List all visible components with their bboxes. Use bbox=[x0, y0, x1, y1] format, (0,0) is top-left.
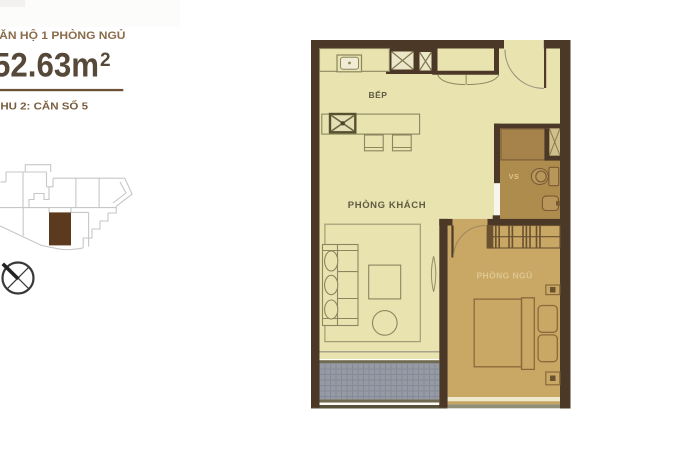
svg-text:PHÒNG KHÁCH: PHÒNG KHÁCH bbox=[348, 199, 426, 211]
svg-text:52.63m: 52.63m bbox=[0, 47, 99, 85]
svg-text:PHÒNG NGỦ: PHÒNG NGỦ bbox=[476, 270, 532, 281]
svg-text:BẾP: BẾP bbox=[369, 90, 388, 100]
svg-text:2: 2 bbox=[100, 50, 111, 71]
svg-text:VS: VS bbox=[509, 172, 519, 181]
svg-text:KHU 2: CĂN SỐ 5: KHU 2: CĂN SỐ 5 bbox=[0, 99, 88, 113]
svg-text:CĂN HỘ 1 PHÒNG NGỦ: CĂN HỘ 1 PHÒNG NGỦ bbox=[0, 29, 126, 42]
